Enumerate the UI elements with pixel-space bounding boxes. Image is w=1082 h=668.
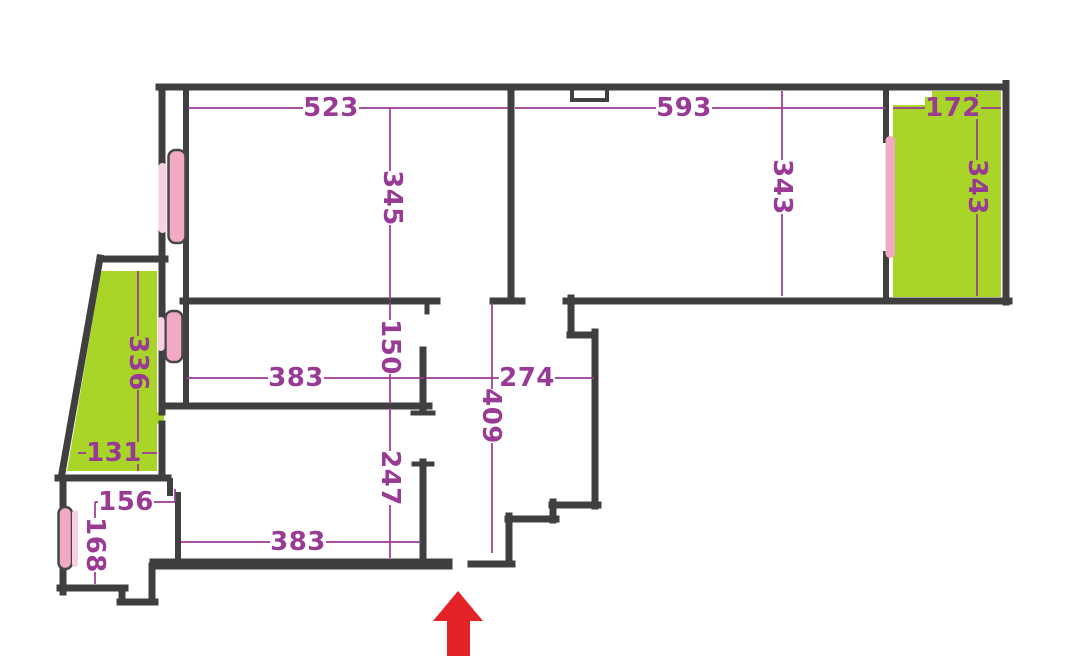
dimension-label-409: 409 xyxy=(476,388,506,444)
balconies xyxy=(67,91,1001,471)
glass-strip-mid-left xyxy=(158,317,165,351)
svg-text:131: 131 xyxy=(86,438,142,468)
outer-walls xyxy=(159,84,1009,565)
dimension-label-345: 345 xyxy=(377,170,407,226)
svg-text:247: 247 xyxy=(375,450,405,506)
dimension-label-383-middle: 383 xyxy=(268,363,324,393)
dimension-label-274: 274 xyxy=(499,363,555,393)
dimension-label-172: 172 xyxy=(925,93,981,123)
svg-text:593: 593 xyxy=(656,93,712,123)
dimension-lines xyxy=(78,91,1001,584)
window-bottom-left xyxy=(59,507,73,569)
dimension-label-383-bottom: 383 xyxy=(270,527,326,557)
floor-plan: 523 593 172 345 343 343 336 150 xyxy=(0,0,1082,668)
svg-text:409: 409 xyxy=(476,388,506,444)
dimension-label-131: 131 xyxy=(86,438,142,468)
interior-walls xyxy=(165,87,522,560)
window-right-balcony xyxy=(886,136,896,258)
entrance-arrow-icon xyxy=(433,591,483,656)
dimension-label-168: 168 xyxy=(80,517,110,573)
floor-plan-page: 523 593 172 345 343 343 336 150 xyxy=(0,0,1082,668)
svg-text:274: 274 xyxy=(499,363,555,393)
svg-text:168: 168 xyxy=(80,517,110,573)
svg-text:523: 523 xyxy=(303,93,359,123)
svg-text:172: 172 xyxy=(925,93,981,123)
dimension-label-336: 336 xyxy=(123,335,153,391)
dimension-label-523: 523 xyxy=(303,93,359,123)
top-wall-notch xyxy=(572,89,607,100)
window-mid-left xyxy=(166,311,183,362)
svg-text:383: 383 xyxy=(270,527,326,557)
dimension-label-247: 247 xyxy=(375,450,405,506)
svg-text:343: 343 xyxy=(962,159,992,215)
dimension-labels: 523 593 172 345 343 343 336 150 xyxy=(80,93,992,573)
svg-text:345: 345 xyxy=(377,170,407,226)
dimension-label-593: 593 xyxy=(656,93,712,123)
svg-text:383: 383 xyxy=(268,363,324,393)
svg-text:150: 150 xyxy=(375,319,405,375)
walls xyxy=(58,84,1009,603)
svg-text:343: 343 xyxy=(767,159,797,215)
window-top-left xyxy=(169,150,186,243)
svg-text:336: 336 xyxy=(123,335,153,391)
interior-walls-thin xyxy=(170,87,886,560)
dimension-label-156: 156 xyxy=(98,487,154,517)
dimension-label-150: 150 xyxy=(375,319,405,375)
svg-text:156: 156 xyxy=(98,487,154,517)
glass-strip-bottom-left xyxy=(72,510,78,567)
dimension-label-343-left: 343 xyxy=(767,159,797,215)
dimension-label-343-right: 343 xyxy=(962,159,992,215)
glass-strip-top-left xyxy=(159,163,167,233)
